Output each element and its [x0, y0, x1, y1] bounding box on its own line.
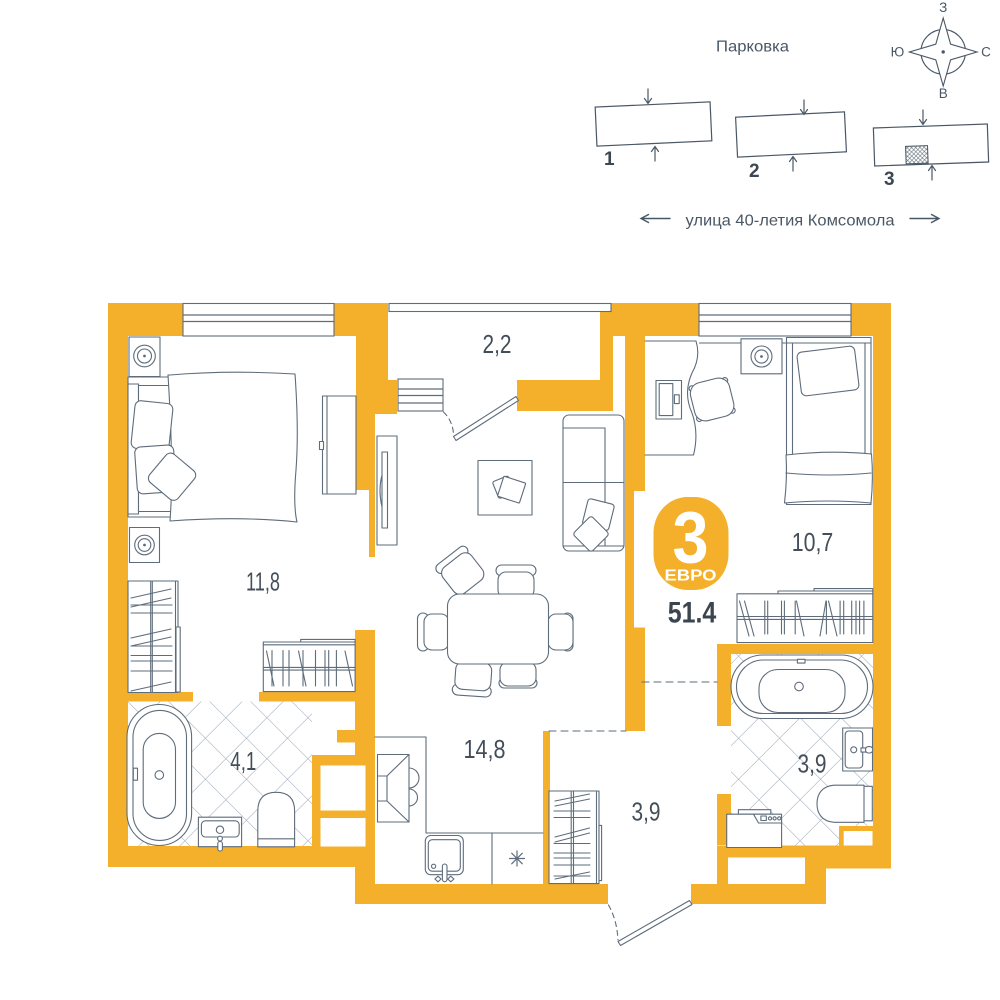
svg-text:51.4: 51.4 [668, 597, 717, 630]
svg-text:ЕВРО: ЕВРО [665, 568, 717, 585]
svg-text:3,9: 3,9 [798, 751, 827, 779]
svg-text:3,9: 3,9 [632, 799, 661, 827]
svg-text:3: 3 [884, 169, 895, 190]
svg-text:14,8: 14,8 [464, 736, 506, 764]
svg-text:2: 2 [749, 161, 760, 182]
svg-text:10,7: 10,7 [792, 529, 834, 557]
svg-text:2,2: 2,2 [483, 331, 512, 359]
svg-text:В: В [939, 86, 948, 101]
svg-text:11,8: 11,8 [246, 569, 280, 597]
svg-text:З: З [939, 0, 947, 15]
svg-text:1: 1 [604, 149, 615, 170]
svg-text:Ю: Ю [891, 45, 905, 60]
svg-text:4,1: 4,1 [230, 748, 256, 776]
svg-text:С: С [981, 45, 991, 60]
svg-text:улица 40-летия Комсомола: улица 40-летия Комсомола [686, 213, 895, 230]
svg-text:3: 3 [673, 498, 709, 579]
svg-text:Парковка: Парковка [716, 39, 789, 56]
